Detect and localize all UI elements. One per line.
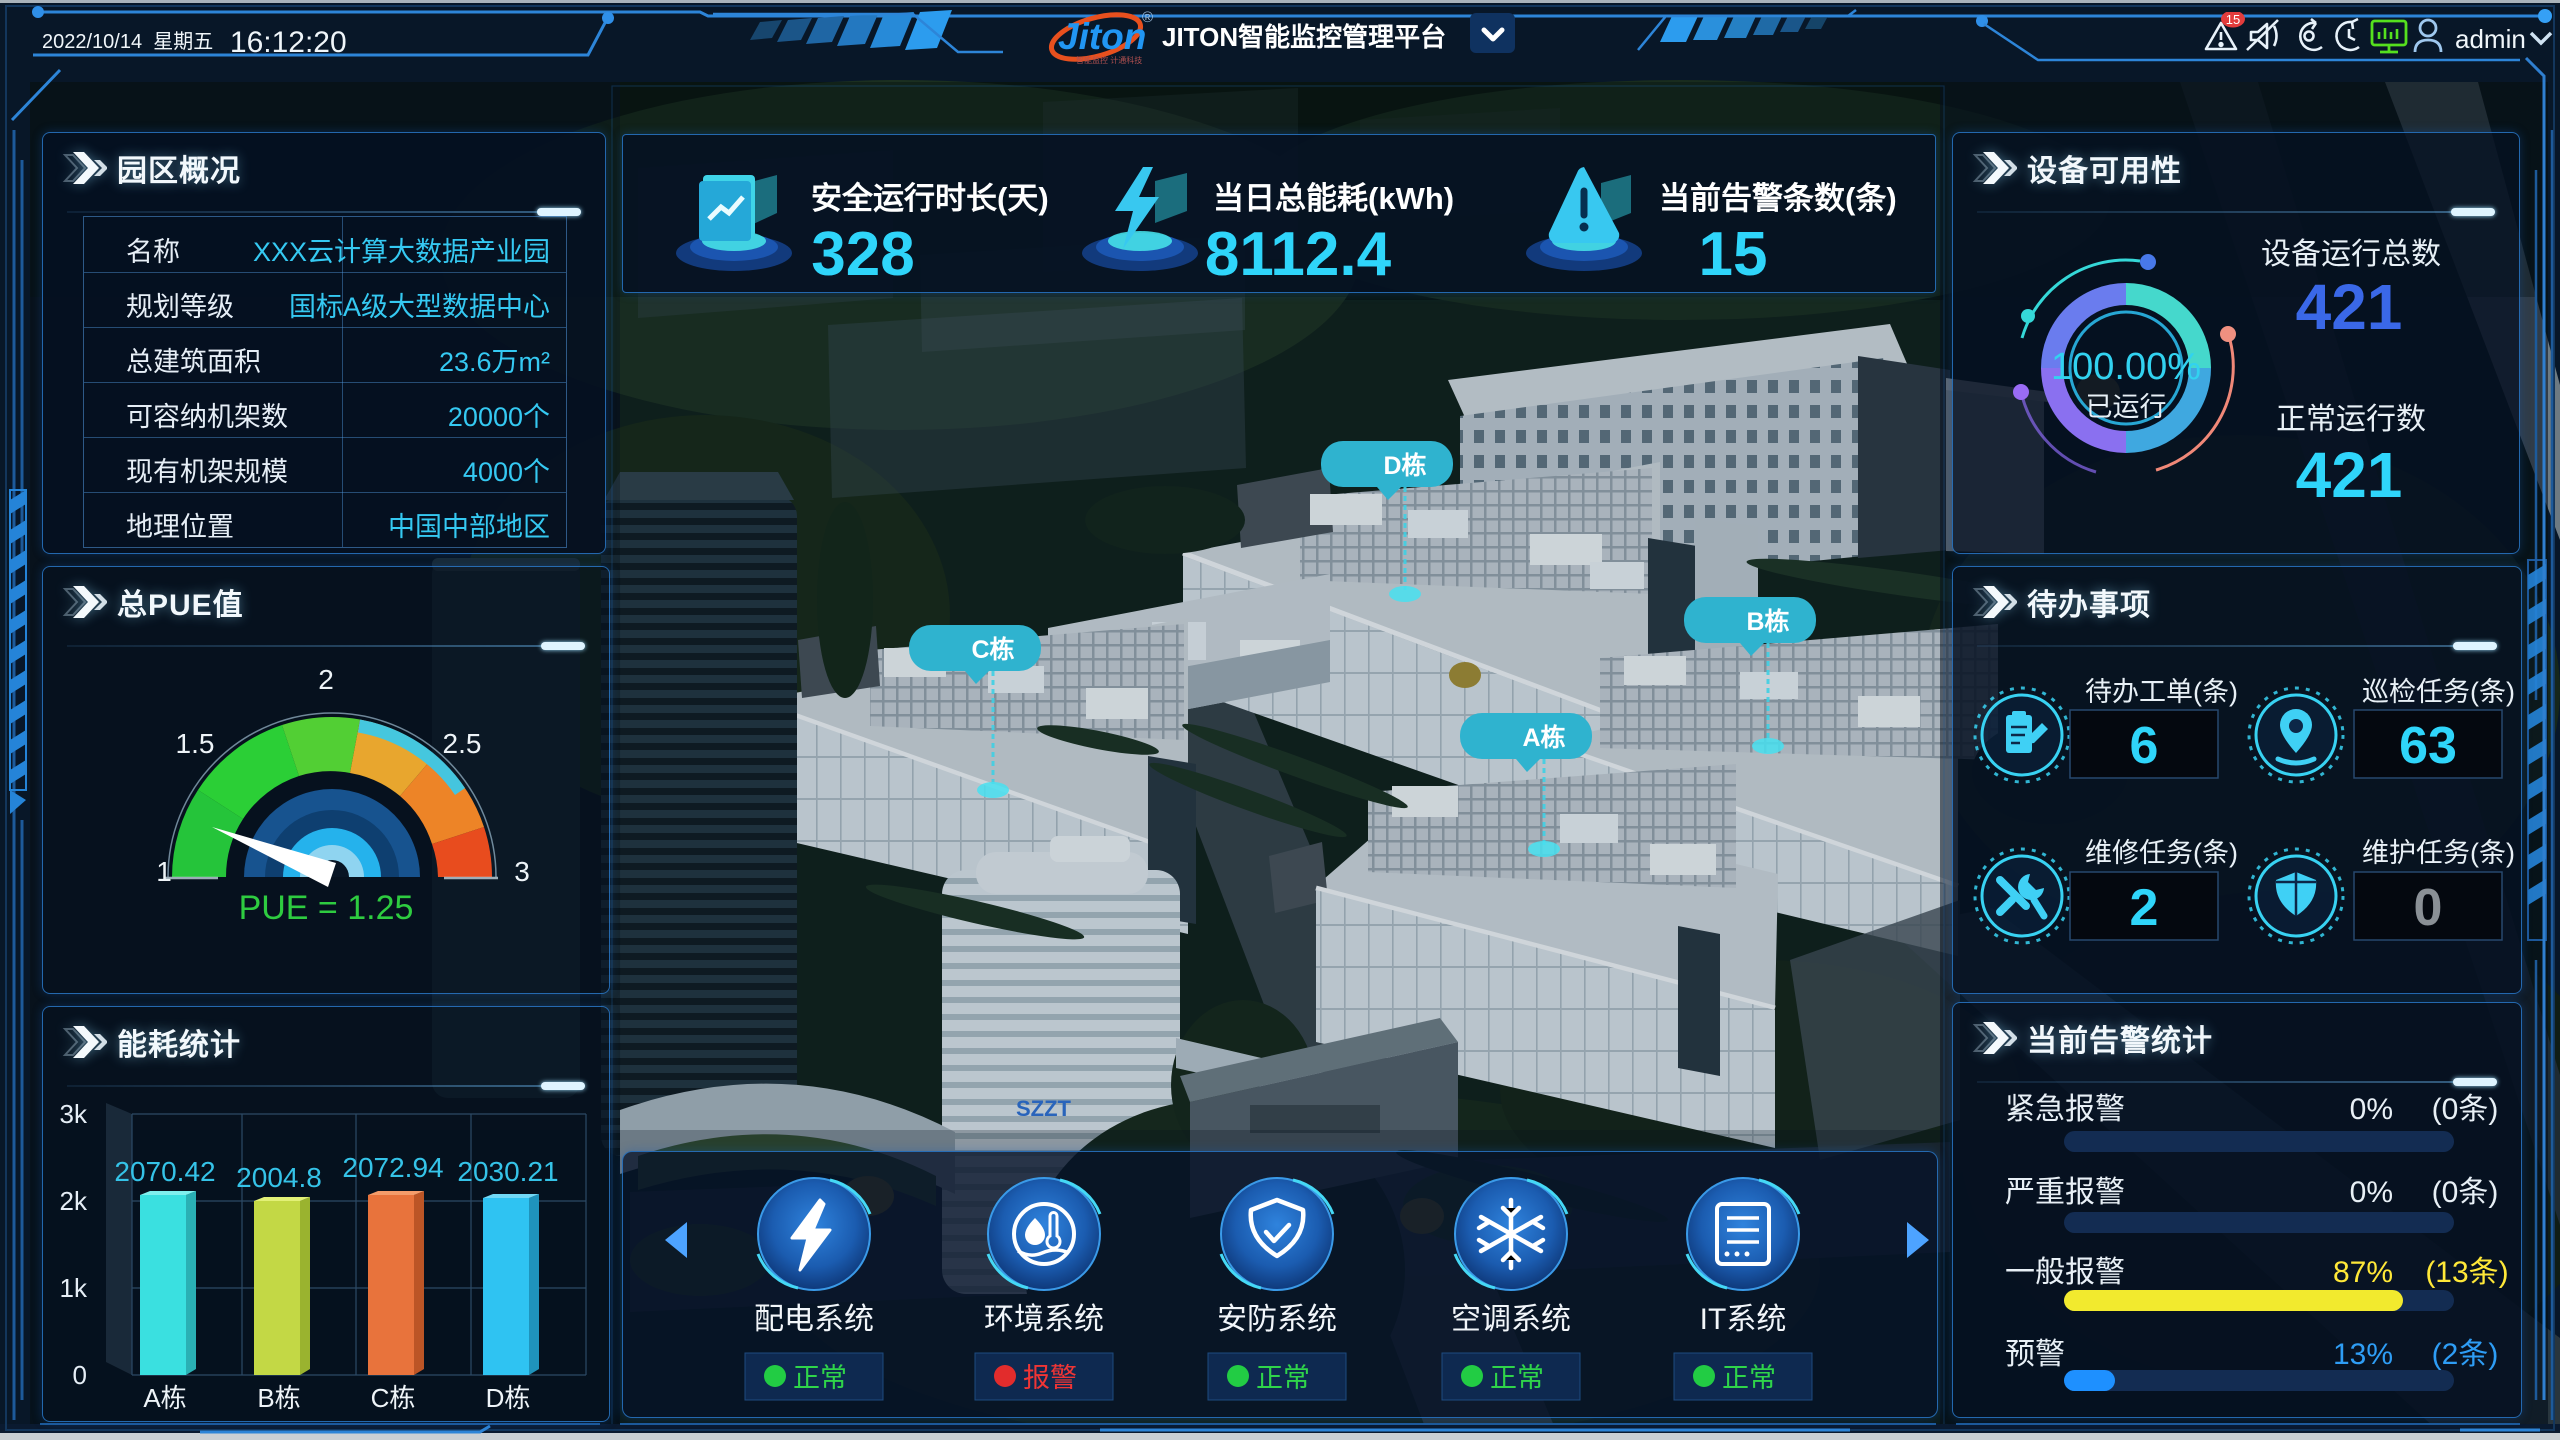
svg-text:PUE = 1.25: PUE = 1.25 [239,889,414,927]
svg-text:正常运行数: 正常运行数 [2276,403,2426,436]
svg-text:(13条): (13条) [2425,1256,2508,1289]
svg-text:严重报警: 严重报警 [2005,1176,2125,1209]
svg-text:2: 2 [2130,879,2159,937]
svg-text:0%: 0% [2350,1176,2393,1209]
svg-text:紧急报警: 紧急报警 [2005,1093,2125,1126]
svg-text:421: 421 [2296,271,2403,343]
svg-text:一般报警: 一般报警 [2005,1256,2125,1289]
svg-text:2.5: 2.5 [443,728,482,759]
svg-text:3: 3 [514,856,530,887]
svg-text:已运行: 已运行 [2086,392,2167,422]
svg-text:0: 0 [73,1360,87,1390]
svg-text:正常: 正常 [1256,1363,1310,1393]
svg-text:(2条): (2条) [2432,1338,2499,1371]
svg-text:100.00%: 100.00% [2051,346,2201,388]
svg-text:(0条): (0条) [2432,1176,2499,1209]
svg-text:2004.8: 2004.8 [236,1162,322,1193]
svg-text:C栋: C栋 [371,1383,416,1413]
svg-text:空调系统: 空调系统 [1451,1303,1571,1336]
svg-text:2: 2 [318,664,334,695]
svg-text:维修任务(条): 维修任务(条) [2085,838,2238,868]
svg-text:巡检任务(条): 巡检任务(条) [2362,677,2515,707]
svg-text:A栋: A栋 [143,1383,186,1413]
svg-text:设备运行总数: 设备运行总数 [2261,238,2441,271]
svg-text:维护任务(条): 维护任务(条) [2362,838,2515,868]
svg-text:13%: 13% [2333,1338,2393,1371]
svg-text:63: 63 [2399,717,2457,775]
svg-text:2072.94: 2072.94 [342,1152,443,1183]
svg-text:报警: 报警 [1023,1363,1077,1393]
svg-text:2k: 2k [60,1186,88,1216]
svg-text:0%: 0% [2350,1093,2393,1126]
svg-text:®: ® [1142,9,1153,26]
svg-text:待办工单(条): 待办工单(条) [2085,677,2238,707]
svg-text:配电系统: 配电系统 [754,1303,874,1336]
svg-text:3k: 3k [60,1099,88,1129]
svg-text:2030.21: 2030.21 [457,1156,558,1187]
svg-text:Jiton: Jiton [1058,16,1146,57]
svg-text:2070.42: 2070.42 [114,1156,215,1187]
svg-text:D栋: D栋 [486,1383,531,1413]
svg-text:1.5: 1.5 [176,728,215,759]
svg-text:15: 15 [2226,12,2240,27]
svg-text:1: 1 [156,856,172,887]
svg-text:正常: 正常 [1490,1363,1544,1393]
svg-text:0: 0 [2414,879,2443,937]
svg-text:87%: 87% [2333,1256,2393,1289]
svg-text:预警: 预警 [2005,1338,2065,1371]
svg-text:1k: 1k [60,1273,88,1303]
svg-text:环境系统: 环境系统 [984,1303,1104,1336]
svg-text:6: 6 [2130,717,2159,775]
svg-text:正常: 正常 [1722,1363,1776,1393]
svg-text:(0条): (0条) [2432,1093,2499,1126]
svg-text:421: 421 [2296,439,2403,511]
svg-text:安防系统: 安防系统 [1217,1303,1337,1336]
svg-text:IT系统: IT系统 [1700,1303,1787,1336]
svg-text:B栋: B栋 [257,1383,300,1413]
svg-text:智能监控 计通科技: 智能监控 计通科技 [1076,55,1142,65]
svg-text:正常: 正常 [793,1363,847,1393]
